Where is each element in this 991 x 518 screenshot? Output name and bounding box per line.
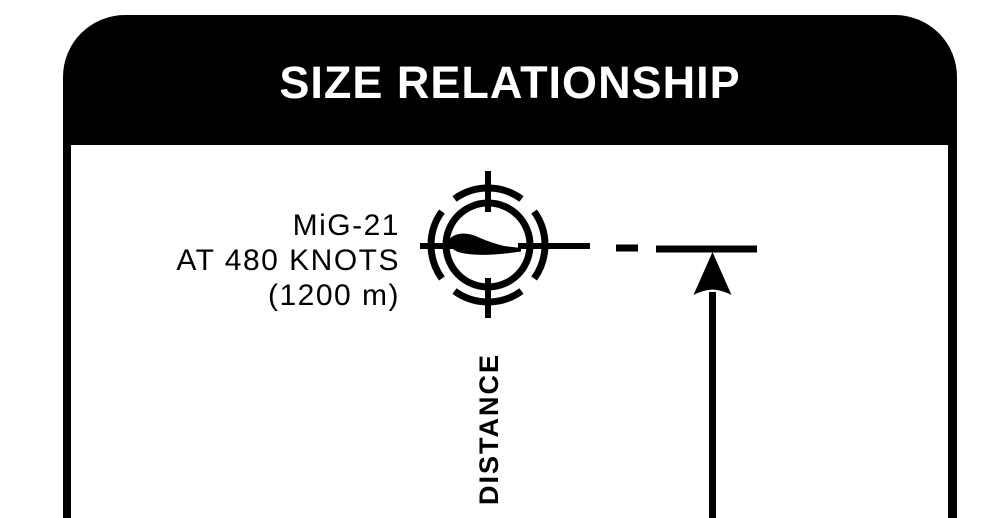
mig21-silhouette-icon [448,234,521,255]
up-arrow-icon [694,252,732,518]
sight-line-dashes [616,248,757,249]
arrow-head [694,252,732,295]
distance-axis-label: DISTANCE [474,344,502,514]
figure-canvas: SIZE RELATIONSHIP MiG-21 AT 480 KNOTS (1… [0,0,991,518]
